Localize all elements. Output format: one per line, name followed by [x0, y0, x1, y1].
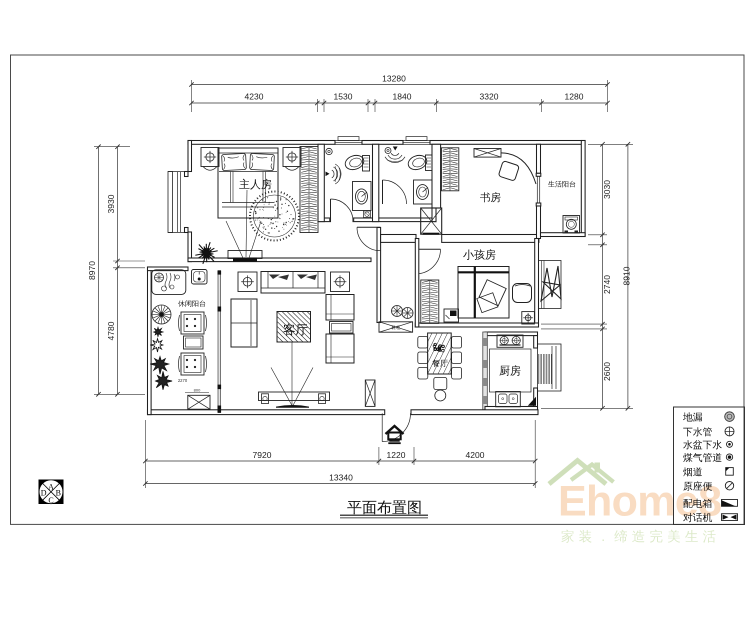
svg-text:2600: 2600 — [602, 362, 612, 381]
svg-text:1220: 1220 — [387, 450, 406, 460]
svg-text:2740: 2740 — [602, 275, 612, 294]
svg-text:D: D — [41, 488, 47, 497]
svg-text:800: 800 — [194, 388, 201, 393]
svg-text:3320: 3320 — [480, 92, 499, 102]
svg-text:13280: 13280 — [382, 74, 406, 84]
svg-text:A: A — [48, 483, 54, 492]
svg-text:3030: 3030 — [602, 180, 612, 199]
svg-text:1840: 1840 — [393, 92, 412, 102]
svg-text:B: B — [56, 488, 61, 497]
svg-text:C: C — [48, 496, 53, 505]
svg-text:7920: 7920 — [253, 450, 272, 460]
svg-text:8970: 8970 — [87, 261, 97, 280]
svg-text:4780: 4780 — [106, 321, 116, 340]
svg-text:4200: 4200 — [466, 450, 485, 460]
svg-text:4230: 4230 — [245, 92, 264, 102]
svg-text:2270: 2270 — [178, 378, 188, 383]
svg-text:13340: 13340 — [329, 473, 353, 483]
svg-text:1530: 1530 — [334, 92, 353, 102]
svg-text:3930: 3930 — [106, 194, 116, 213]
svg-text:1280: 1280 — [565, 92, 584, 102]
svg-text:8910: 8910 — [622, 266, 632, 285]
